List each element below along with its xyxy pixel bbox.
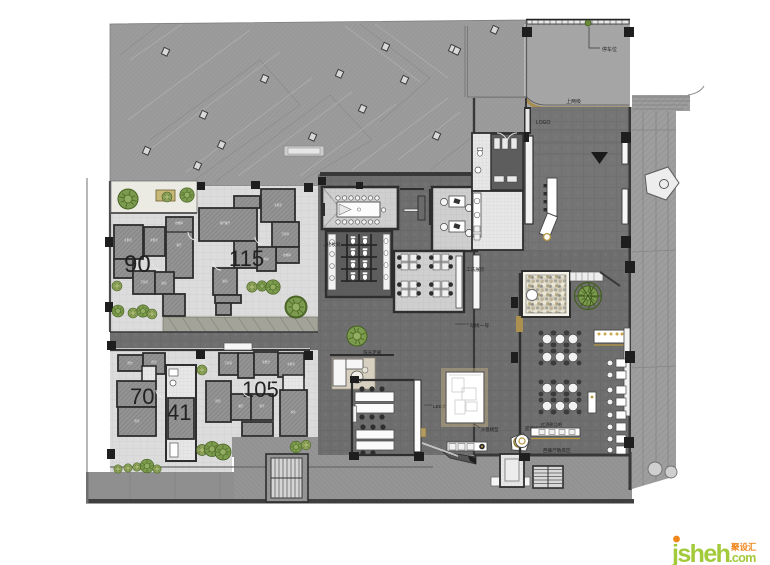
svg-text:客厅: 客厅 [259, 404, 265, 408]
svg-text:主卧室: 主卧室 [274, 203, 282, 207]
svg-text:卧室: 卧室 [215, 399, 221, 403]
svg-text:卫生间: 卫生间 [281, 232, 289, 236]
svg-text:.com: .com [729, 551, 756, 565]
svg-text:卫生间: 卫生间 [140, 280, 148, 284]
svg-text:主卧室: 主卧室 [287, 362, 295, 366]
svg-text:厨房: 厨房 [222, 279, 228, 283]
svg-text:沙盘模型: 沙盘模型 [481, 426, 499, 433]
svg-text:衣帽间: 衣帽间 [175, 221, 183, 225]
svg-text:聚设汇: 聚设汇 [730, 542, 757, 552]
svg-text:次卧室: 次卧室 [150, 238, 158, 242]
svg-text:115: 115 [229, 246, 264, 271]
svg-text:卫生间: 卫生间 [224, 361, 232, 365]
svg-text:红酒甜品吧: 红酒甜品吧 [541, 421, 563, 428]
svg-text:客厅餐厅: 客厅餐厅 [220, 221, 231, 225]
svg-text:书房: 书房 [290, 410, 296, 414]
svg-text:工法展示: 工法展示 [466, 266, 485, 273]
svg-text:卧室: 卧室 [134, 419, 140, 423]
svg-text:次卧室: 次卧室 [262, 360, 270, 364]
svg-text:上两级: 上两级 [566, 98, 581, 105]
svg-text:70: 70 [130, 384, 154, 409]
svg-text:卧室: 卧室 [151, 360, 157, 364]
svg-text:厨房: 厨房 [161, 281, 167, 285]
svg-text:90: 90 [124, 251, 151, 278]
svg-text:主卧室: 主卧室 [124, 238, 132, 242]
svg-text:西餐厅散席区: 西餐厅散席区 [543, 447, 571, 454]
svg-text:41: 41 [167, 400, 191, 425]
svg-text:阳台: 阳台 [127, 361, 133, 365]
svg-text:LOGO: LOGO [536, 120, 551, 126]
svg-text:客厅: 客厅 [176, 243, 182, 247]
svg-text:动线一号: 动线一号 [470, 322, 489, 329]
svg-text:停车位: 停车位 [602, 46, 617, 53]
svg-text:餐厅: 餐厅 [238, 404, 244, 408]
svg-text:105: 105 [242, 377, 279, 402]
svg-text:←化妆间: ←化妆间 [322, 241, 341, 248]
svg-text:jsheh: jsheh [671, 540, 730, 565]
svg-text:衣帽间: 衣帽间 [283, 253, 291, 257]
svg-text:书房: 书房 [263, 257, 269, 261]
